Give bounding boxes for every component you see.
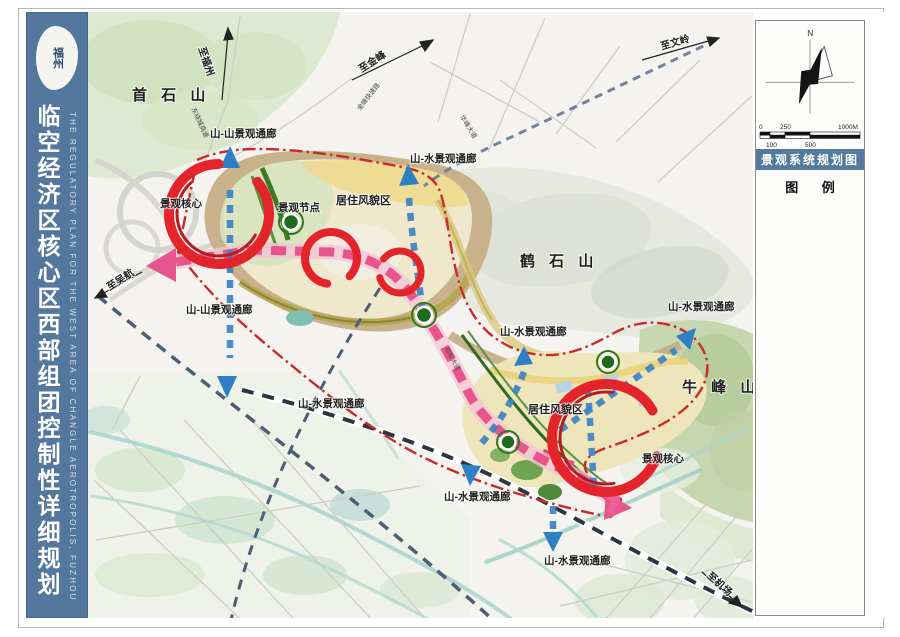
label-corridor-sw-heshi: 山-水景观通廊 bbox=[500, 325, 567, 338]
label-to-wenling: 至文岭 bbox=[659, 32, 691, 53]
planning-sheet: 福州 临空经济区核心区西部组团控制性详细规划 THE REGULATORY PL… bbox=[0, 0, 900, 637]
label-corridor-sw-left: 山-水景观通廊 bbox=[298, 397, 365, 410]
info-panel: N 0 250 1000M bbox=[753, 12, 884, 618]
label-residential-nw: 居住风貌区 bbox=[336, 193, 391, 207]
label-core-northwest: 景观核心 bbox=[159, 197, 202, 210]
label-to-jinfeng: 至金峰 bbox=[356, 47, 389, 75]
label-corridor-sw-bottom: 山-水景观通廊 bbox=[544, 554, 611, 567]
scale-bar: 0 250 1000M 100 500 bbox=[756, 121, 864, 151]
label-residential-se: 居住风貌区 bbox=[528, 402, 583, 416]
label-corridor-sw-center: 山-水景观通廊 bbox=[444, 490, 511, 503]
city-seal-logo: 福州 bbox=[36, 26, 78, 90]
plan-title-cn: 临空经济区核心区西部组团控制性详细规划 bbox=[32, 104, 62, 610]
north-arrow: N bbox=[756, 23, 864, 123]
plan-title-en: THE REGULATORY PLAN FOR THE WEST AREA OF… bbox=[68, 112, 77, 612]
map-sheet-title: 景观系统规划图 bbox=[756, 149, 864, 170]
label-road-jinfeng: 金峰快速路 bbox=[355, 80, 382, 112]
label-shoushi-mountain: 首 石 山 bbox=[132, 86, 210, 104]
north-label: N bbox=[807, 28, 813, 38]
legend-empty-area bbox=[756, 201, 864, 611]
label-node: 景观节点 bbox=[277, 201, 320, 214]
label-road-huafeng: 华峰大道 bbox=[458, 113, 480, 140]
label-corridor-sw-right: 山-水景观通廊 bbox=[668, 300, 735, 313]
scale-0: 0 bbox=[759, 124, 763, 131]
label-core-southeast: 景观核心 bbox=[641, 452, 684, 465]
axis-arrowhead-west bbox=[146, 248, 176, 282]
map-canvas: 首 石 山 鹤 石 山 牛 峰 山 山-山景观通廊 山-水景观通廊 山-山景观通… bbox=[88, 12, 753, 618]
seal-text: 福州 bbox=[52, 47, 63, 69]
title-sidebar: 福州 临空经济区核心区西部组团控制性详细规划 THE REGULATORY PL… bbox=[26, 12, 88, 618]
label-corridor-ss-mid: 山-山景观通廊 bbox=[186, 303, 253, 316]
scale-100: 100 bbox=[766, 142, 777, 149]
label-heshi-mountain: 鹤 石 山 bbox=[520, 252, 598, 270]
legend-title: 图 例 bbox=[756, 177, 864, 196]
scale-500: 500 bbox=[805, 142, 816, 149]
label-niufeng-mountain: 牛 峰 山 bbox=[682, 378, 753, 396]
label-corridor-ss-top: 山-山景观通廊 bbox=[210, 127, 277, 140]
info-panel-box: N 0 250 1000M bbox=[755, 20, 865, 616]
landscape-plan-map: 首 石 山 鹤 石 山 牛 峰 山 山-山景观通廊 山-水景观通廊 山-山景观通… bbox=[88, 12, 753, 618]
scale-1000: 1000M bbox=[838, 124, 858, 131]
label-corridor-sw-top: 山-水景观通廊 bbox=[410, 152, 477, 165]
scale-250: 250 bbox=[780, 124, 791, 131]
